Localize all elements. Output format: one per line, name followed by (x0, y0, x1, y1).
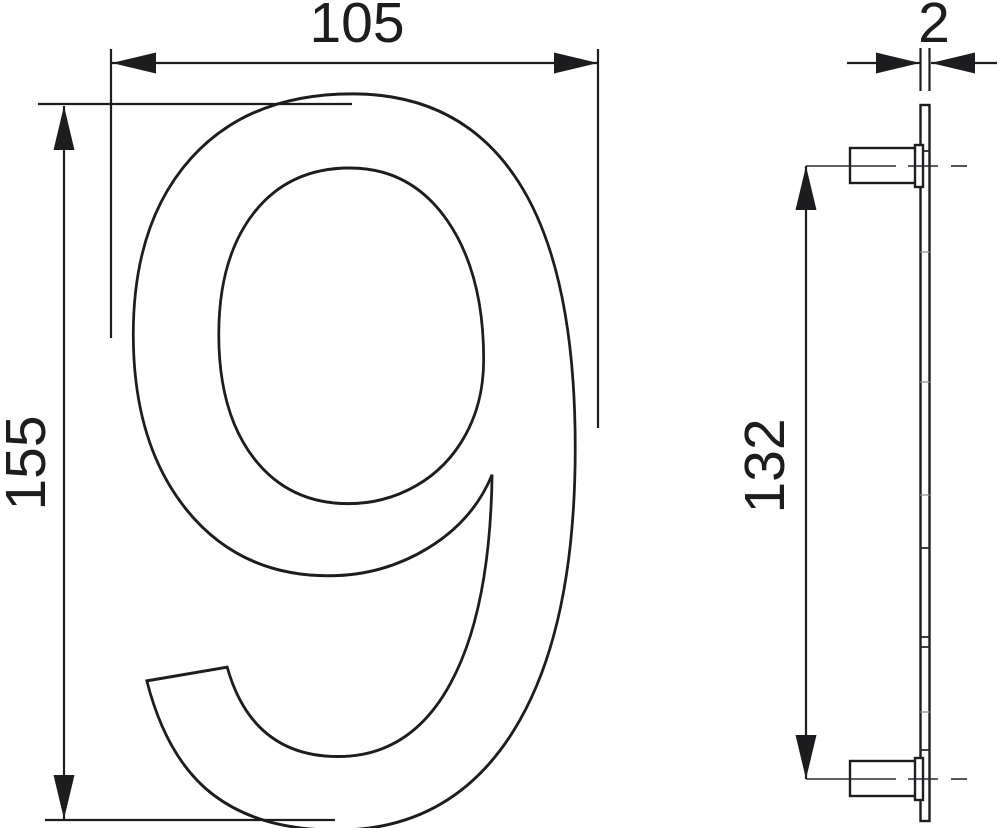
numeral-outline: 9 (88, 0, 620, 828)
numeral-outline-group: 9 (88, 0, 620, 828)
drawing-svg: 9 105 155 (0, 0, 1000, 828)
pin-spacing-dimension-label: 132 (733, 418, 797, 513)
thickness-dimension-label: 2 (918, 0, 950, 55)
dimension-drawing: 9 105 155 (0, 0, 1000, 828)
front-view: 9 105 155 (0, 0, 621, 828)
width-dimension-label: 105 (309, 0, 404, 55)
height-dimension-label: 155 (0, 415, 58, 510)
plate-profile (921, 105, 930, 821)
